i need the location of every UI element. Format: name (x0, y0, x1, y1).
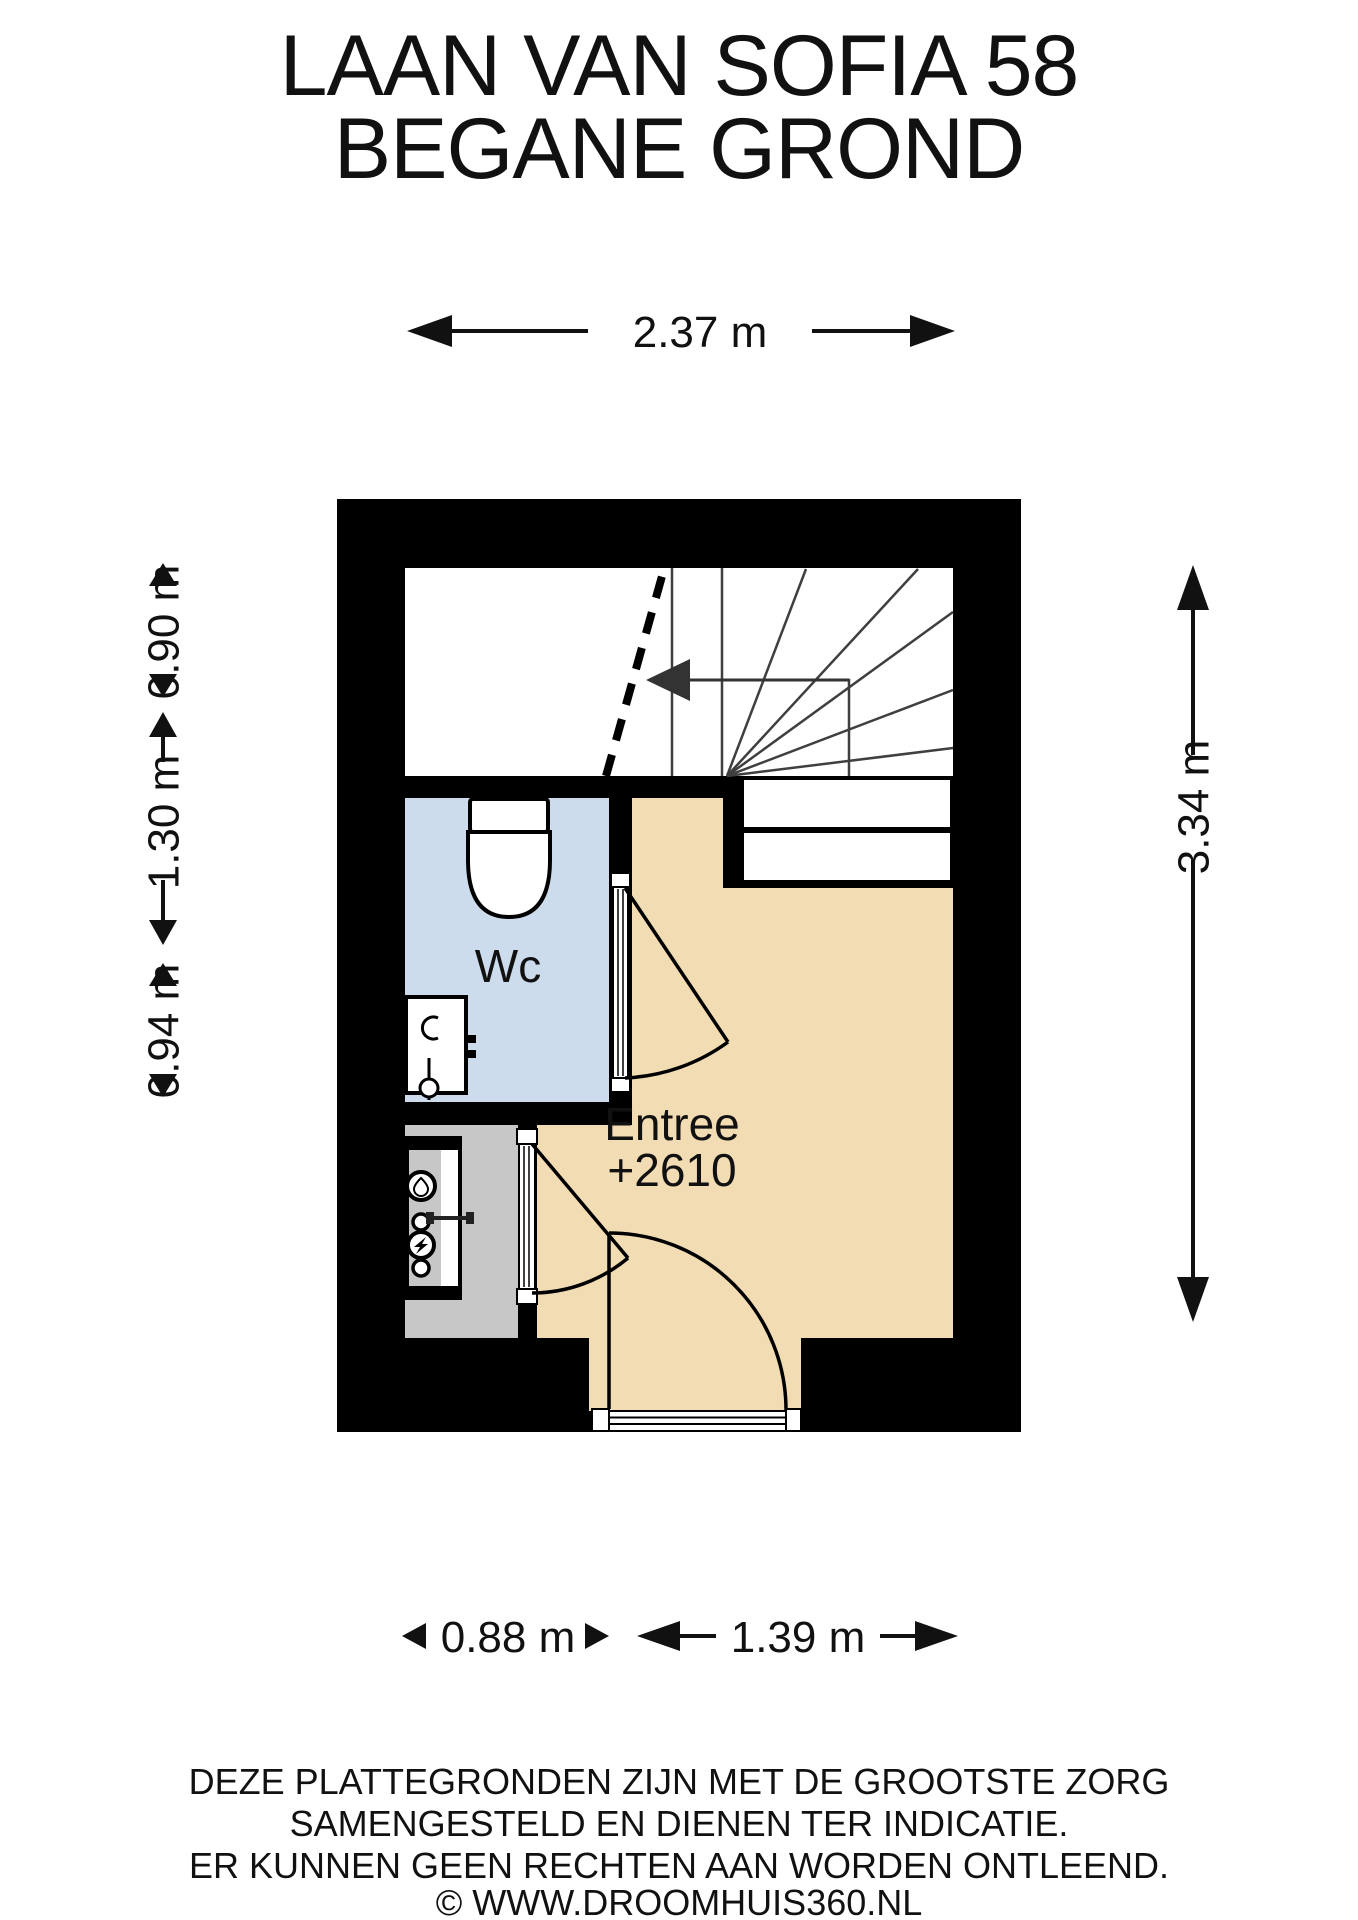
dimension-left-middle: 1.30 m (139, 712, 188, 945)
disclaimer: DEZE PLATTEGRONDEN ZIJN MET DE GROOTSTE … (189, 1761, 1170, 1920)
sink-icon (406, 997, 476, 1100)
dimension-top-width: 2.37 m (407, 308, 955, 357)
dimension-bottom-left: 0.88 m (402, 1613, 609, 1662)
floorplan-page: LAAN VAN SOFIA 58 BEGANE GROND (0, 0, 1358, 1920)
dimension-left-top: 0.90 m (139, 563, 188, 699)
dimension-left-top-label: 0.90 m (139, 565, 188, 700)
dimension-bottom-right: 1.39 m (637, 1613, 958, 1662)
door-threshold (609, 1411, 786, 1431)
toilet-icon (468, 799, 550, 917)
page-title-line2: BEGANE GROND (334, 101, 1024, 197)
wc-room-label: Wc (475, 940, 541, 992)
disclaimer-line1: DEZE PLATTEGRONDEN ZIJN MET DE GROOTSTE … (189, 1761, 1170, 1802)
dimension-top-width-label: 2.37 m (633, 308, 768, 357)
disclaimer-line3: ER KUNNEN GEEN RECHTEN AAN WORDEN ONTLEE… (189, 1845, 1169, 1886)
disclaimer-line2: SAMENGESTELD EN DIENEN TER INDICATIE. (290, 1803, 1069, 1844)
dimension-right-height-label: 3.34 m (1169, 740, 1218, 875)
dimension-left-middle-label: 1.30 m (139, 755, 188, 890)
electricity-meter-icon (408, 1232, 434, 1258)
dimension-bottom-left-label: 0.88 m (441, 1613, 576, 1662)
dimension-left-bottom-label: 0.94 m (139, 964, 188, 1099)
disclaimer-copyright: © WWW.DROOMHUIS360.NL (436, 1882, 923, 1920)
entree-room-label: Entree (604, 1098, 740, 1150)
gas-meter-icon (407, 1172, 435, 1200)
page-title-line1: LAAN VAN SOFIA 58 (280, 18, 1079, 114)
dimension-left-bottom: 0.94 m (139, 963, 188, 1098)
dimension-bottom-right-label: 1.39 m (731, 1613, 866, 1662)
dimension-right-height: 3.34 m (1169, 565, 1218, 1322)
floorplan-canvas: LAAN VAN SOFIA 58 BEGANE GROND (0, 0, 1358, 1920)
entree-elevation-label: +2610 (607, 1144, 736, 1196)
